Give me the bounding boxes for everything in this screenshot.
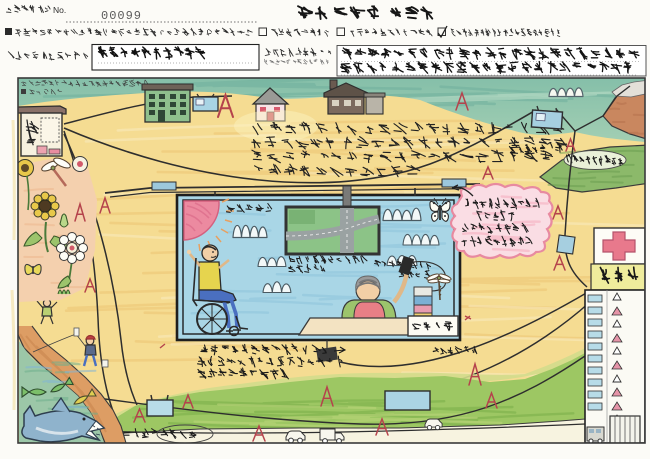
svg-text:No.: No.: [53, 5, 66, 15]
svg-text:00099: 00099: [101, 9, 142, 23]
